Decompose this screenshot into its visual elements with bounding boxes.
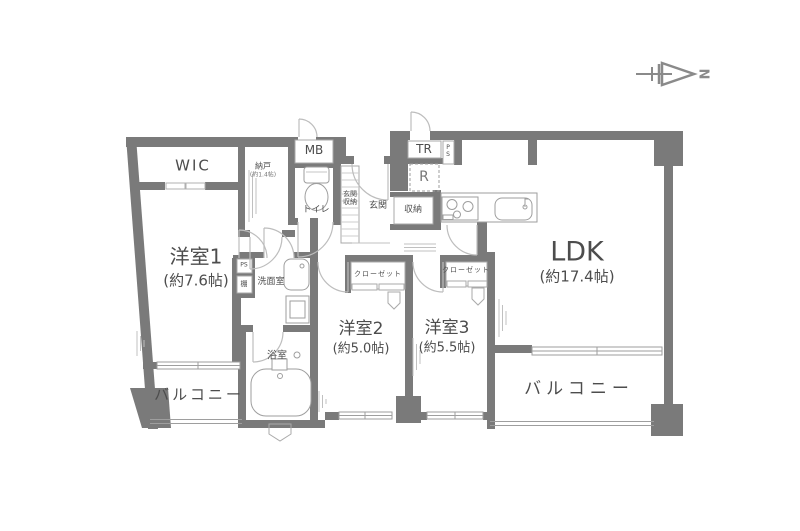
room-size-western-room-2: (約5.0帖) <box>333 343 390 358</box>
label-balcony-right: バルコニー <box>524 380 634 400</box>
room-label-ldk: LDK <box>550 236 604 267</box>
shower-icon <box>294 352 300 358</box>
label-pipe-space-top: PS <box>445 145 452 159</box>
label-shelf: 棚 <box>241 280 248 288</box>
label-refrigerator-space: R <box>419 169 429 185</box>
label-entrance-storage: 玄関収納 <box>342 190 358 206</box>
label-meter-box: MB <box>305 144 324 158</box>
room-label-entrance: 玄関 <box>369 201 387 211</box>
room-size-ldk: (約17.4帖) <box>539 268 614 285</box>
floorplan-drawing <box>0 0 800 531</box>
room-label-wic: WIC <box>175 157 211 174</box>
kitchen-counter <box>441 193 537 222</box>
room-label-toilet: トイレ <box>302 205 329 215</box>
washbasin <box>284 259 309 290</box>
floorplan-page: WIC 納戸 (約1.4帖) MB トイレ 玄関収納 玄関 TR PS R 収納… <box>0 0 800 531</box>
room-label-storeroom: 納戸 <box>255 161 271 170</box>
room-size-western-room-1: (約7.6帖) <box>163 272 229 289</box>
room-label-western-room-3: 洋室3 <box>425 319 470 339</box>
room-size-storeroom: (約1.4帖) <box>250 173 276 180</box>
room-label-western-room-1: 洋室1 <box>170 246 223 269</box>
room-label-washroom: 洗面室 <box>257 277 284 287</box>
label-balcony-left: バルコニー <box>154 386 244 403</box>
label-closet-w2: クローゼット <box>354 270 402 278</box>
label-closet-w3: クローゼット <box>442 266 490 274</box>
label-trunk-room: TR <box>416 143 432 157</box>
label-hall-storage: 収納 <box>404 205 422 215</box>
room-label-bathroom: 浴室 <box>267 350 287 362</box>
north-arrow <box>636 63 694 85</box>
room-label-western-room-2: 洋室2 <box>339 320 384 340</box>
wic-folding-door <box>166 183 205 189</box>
room-size-western-room-3: (約5.5帖) <box>419 342 476 357</box>
north-label: N <box>695 69 710 80</box>
washing-machine-space <box>286 296 309 323</box>
label-pipe-space-side: PS <box>240 263 247 270</box>
